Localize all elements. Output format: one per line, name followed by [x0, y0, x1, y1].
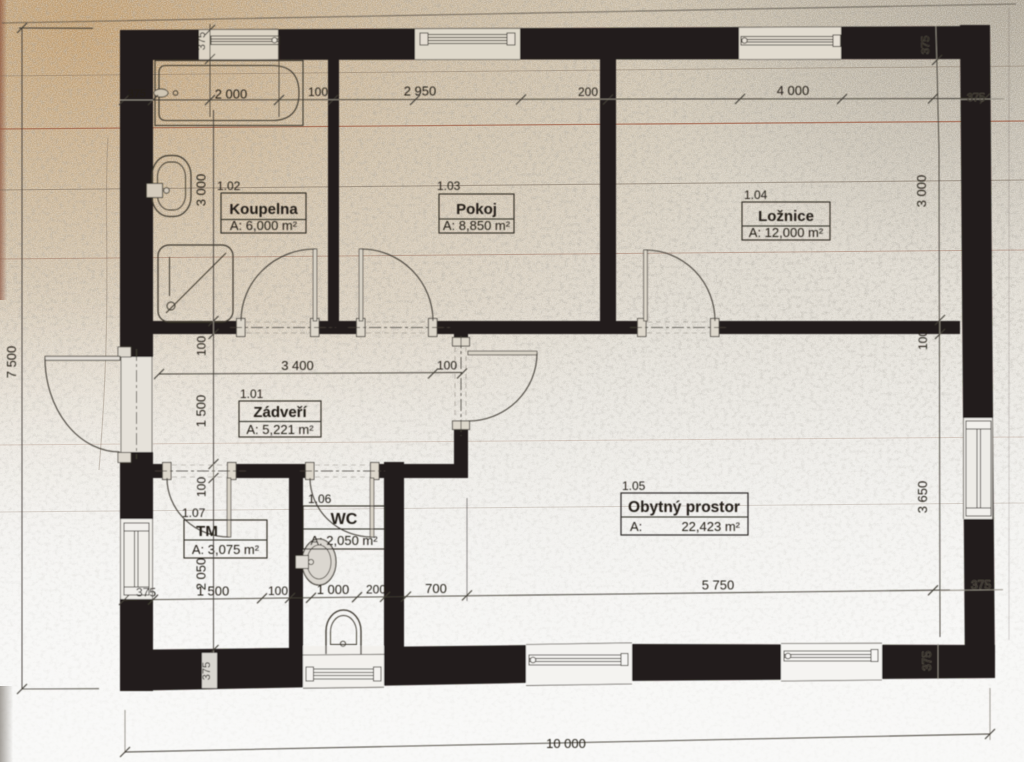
- svg-text:5 750: 5 750: [702, 578, 735, 593]
- svg-text:3 650: 3 650: [915, 481, 930, 514]
- svg-text:1.04: 1.04: [744, 188, 768, 202]
- svg-text:200: 200: [366, 583, 386, 597]
- svg-text:1.06: 1.06: [308, 492, 332, 506]
- svg-text:A: 2,050 m²: A: 2,050 m²: [310, 533, 378, 548]
- svg-text:100: 100: [195, 477, 209, 497]
- svg-text:7 500: 7 500: [4, 346, 19, 379]
- svg-text:1.02: 1.02: [217, 179, 241, 193]
- svg-text:A: 12,000 m²: A: 12,000 m²: [749, 225, 824, 240]
- svg-text:Obytný prostor: Obytný prostor: [628, 499, 740, 516]
- svg-text:A: 5,221 m²: A: 5,221 m²: [246, 422, 314, 437]
- svg-text:100: 100: [195, 336, 209, 356]
- svg-text:1.01: 1.01: [240, 387, 264, 401]
- svg-text:100: 100: [916, 330, 930, 350]
- svg-text:4 000: 4 000: [777, 83, 810, 98]
- svg-text:A:: A:: [630, 519, 642, 534]
- svg-text:375: 375: [971, 578, 991, 592]
- svg-text:3 000: 3 000: [194, 174, 209, 207]
- svg-text:Pokoj: Pokoj: [456, 201, 497, 218]
- svg-text:375: 375: [136, 586, 156, 600]
- svg-text:1 500: 1 500: [194, 395, 209, 428]
- svg-text:700: 700: [425, 581, 447, 596]
- svg-text:2 950: 2 950: [404, 84, 437, 99]
- svg-text:1.07: 1.07: [182, 506, 206, 520]
- svg-text:375: 375: [920, 36, 932, 54]
- svg-text:A: 6,000 m²: A: 6,000 m²: [230, 218, 298, 233]
- svg-text:Zádveří: Zádveří: [253, 404, 307, 421]
- svg-text:100: 100: [437, 359, 457, 373]
- svg-text:3 400: 3 400: [281, 358, 314, 373]
- svg-text:375: 375: [967, 92, 985, 104]
- svg-text:1 500: 1 500: [197, 584, 230, 599]
- svg-text:1.03: 1.03: [437, 179, 461, 193]
- svg-text:3 000: 3 000: [914, 175, 929, 208]
- svg-text:375: 375: [201, 662, 213, 680]
- svg-text:Ložnice: Ložnice: [758, 208, 814, 225]
- svg-text:22,423 m²: 22,423 m²: [681, 519, 740, 534]
- svg-text:1.05: 1.05: [622, 479, 646, 493]
- svg-text:A: 3,075 m²: A: 3,075 m²: [192, 542, 260, 557]
- svg-text:10 000: 10 000: [546, 736, 586, 751]
- svg-text:100: 100: [308, 85, 328, 99]
- svg-text:375: 375: [920, 651, 934, 671]
- svg-text:2 000: 2 000: [215, 87, 248, 102]
- svg-text:1 000: 1 000: [317, 582, 350, 597]
- svg-text:Koupelna: Koupelna: [229, 201, 298, 218]
- svg-text:WC: WC: [331, 511, 358, 528]
- svg-text:100: 100: [268, 584, 288, 598]
- svg-text:A: 8,850 m²: A: 8,850 m²: [443, 218, 511, 233]
- svg-text:TM: TM: [196, 523, 218, 540]
- svg-text:200: 200: [578, 85, 598, 99]
- svg-text:375: 375: [128, 88, 146, 100]
- svg-text:375: 375: [196, 32, 208, 50]
